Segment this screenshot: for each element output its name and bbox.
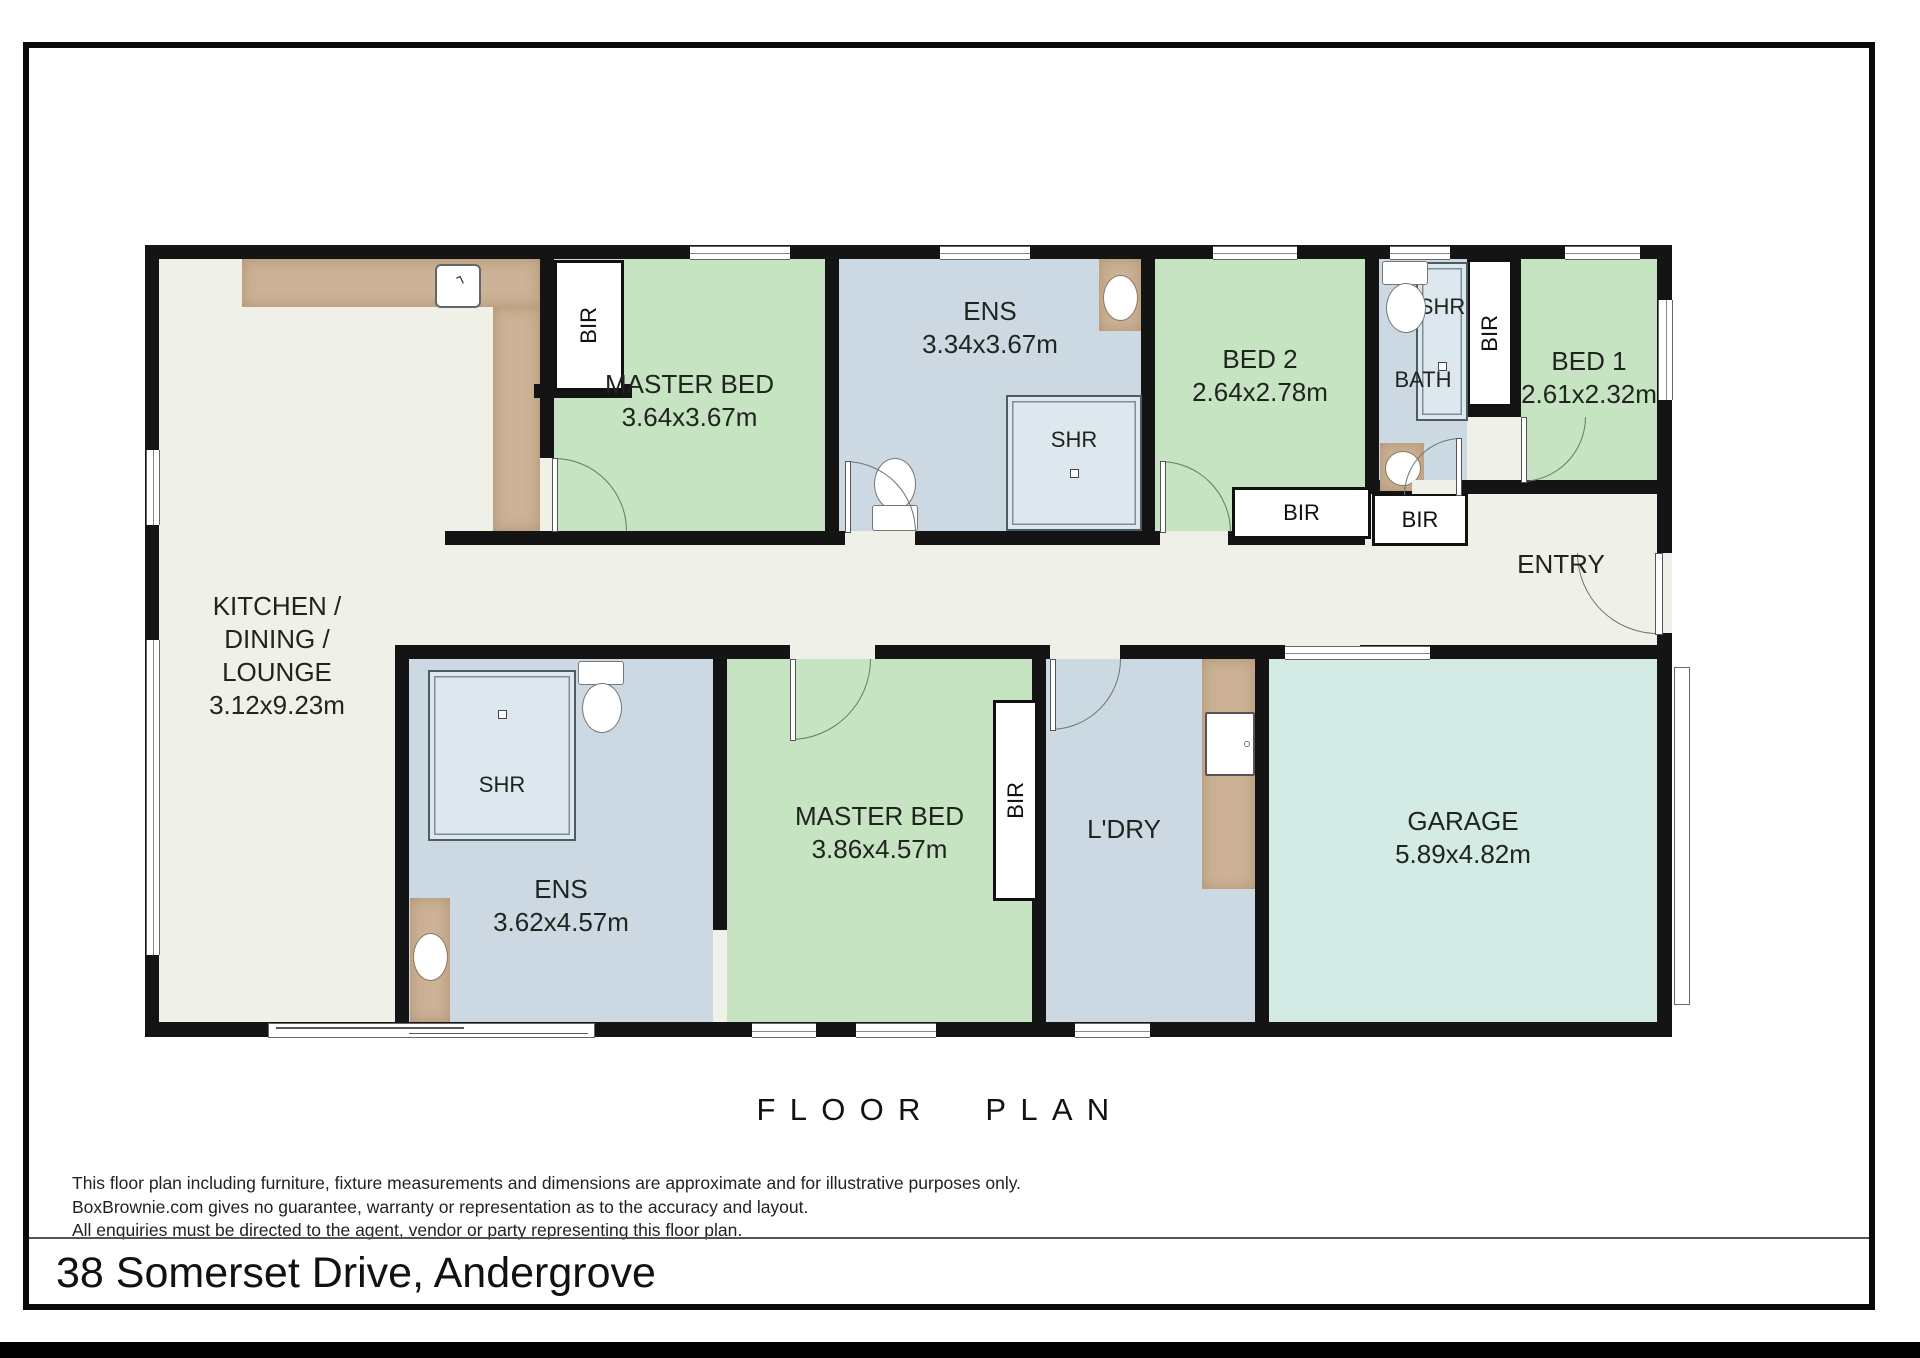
wall-lower-top-a [395,645,790,659]
shower-ens-upper: SHR [1006,395,1142,531]
label-garage: GARAGE 5.89x4.82m [1269,805,1657,871]
floor-plan-title: FLOOR PLAN [0,1092,1880,1128]
door-leaf [1050,659,1056,731]
window [1390,246,1450,260]
shr-label: SHR [479,772,525,798]
bir-label: BIR [1283,500,1320,526]
door-gap-ens-upper [845,531,915,545]
wall-kitchen-enslower [395,659,409,1022]
window-left [146,450,160,525]
window-bed1-right [1658,300,1673,400]
label-bed2: BED 2 2.64x2.78m [1155,343,1365,409]
washer-icon [1205,712,1255,776]
garage-door [1674,667,1690,1005]
kitchen-sink-icon [435,264,481,308]
bir-label: BIR [1402,507,1439,533]
door-leaf [1160,461,1166,533]
wall-lower-top-b [875,645,1050,659]
label-entry: ENTRY [1465,548,1657,581]
window-left-long [146,640,160,955]
closet-bir-bed1: BIR [1467,259,1513,407]
label-bed1: BED 1 2.61x2.32m [1521,345,1657,411]
door-gap-laundry [1050,645,1120,659]
label-laundry: L'DRY [1046,813,1202,846]
bottom-black-bar [0,1342,1920,1358]
address-separator-line [29,1237,1869,1239]
label-ens-lower: ENS 3.62x4.57m [409,873,713,939]
wall-kitchen-master [540,259,554,384]
sliding-door [268,1023,595,1038]
wall-bath-bed1-bottom [1458,480,1657,494]
shower-ens-lower: SHR [428,670,576,841]
wall-laundry-garage [1255,659,1269,1022]
label-bath: BATH [1373,363,1473,396]
window-bottom [856,1023,936,1038]
door-leaf [1456,438,1462,496]
address-text: 38 Somerset Drive, Andergrove [56,1249,656,1298]
wall-enslower-master [713,659,727,930]
kitchen-counter-top [242,259,540,307]
door-gap-bed1 [1507,417,1521,480]
wall-upper-bottom-a [445,531,845,545]
window-bottom [1075,1023,1150,1038]
door-gap-bed2 [1160,531,1228,545]
window [690,246,790,260]
wall-kitchen-master-lower [540,398,554,458]
label-master-bed-upper: MASTER BED 3.64x3.67m [554,368,825,434]
floor-plan-canvas: BIR BIR BIR BIR BIR SHR SHR SHR [145,245,1672,1037]
label-ens-upper: ENS 3.34x3.67m [839,295,1141,361]
disclaimer-line-1: This floor plan including furniture, fix… [72,1172,1021,1196]
closet-bir-bath: BIR [1372,493,1468,546]
label-master-bed-lower: MASTER BED 3.86x4.57m [727,800,1032,866]
closet-bir-bed2: BIR [1232,487,1371,539]
wall-lower-top-c [1120,645,1285,659]
window-bottom [752,1023,816,1038]
sink-ens-lower-icon [413,933,448,981]
window [1213,246,1297,260]
window-garage-top [1285,646,1430,660]
window [1565,246,1640,260]
wall-ens-bed2 [1141,259,1155,531]
shower-bath: SHR [1416,262,1468,421]
kitchen-counter-arm [493,307,540,531]
wall-upper-bottom-b [915,531,1160,545]
disclaimer-line-2: BoxBrownie.com gives no guarantee, warra… [72,1196,1021,1220]
door-leaf [845,461,851,533]
bir-label: BIR [1477,315,1503,352]
door-leaf [552,458,558,532]
shr-label: SHR [1051,427,1097,453]
wall-master-ens [825,259,839,531]
label-kitchen: KITCHEN / DINING / LOUNGE 3.12x9.23m [159,590,395,722]
door-gap-master-lower [790,645,875,659]
bir-label: BIR [576,307,602,344]
disclaimer-text: This floor plan including furniture, fix… [72,1172,1021,1243]
window [940,246,1030,260]
door-leaf [790,659,796,741]
door-leaf [1521,417,1527,483]
kitchen-dims: 3.12x9.23m [159,689,395,722]
